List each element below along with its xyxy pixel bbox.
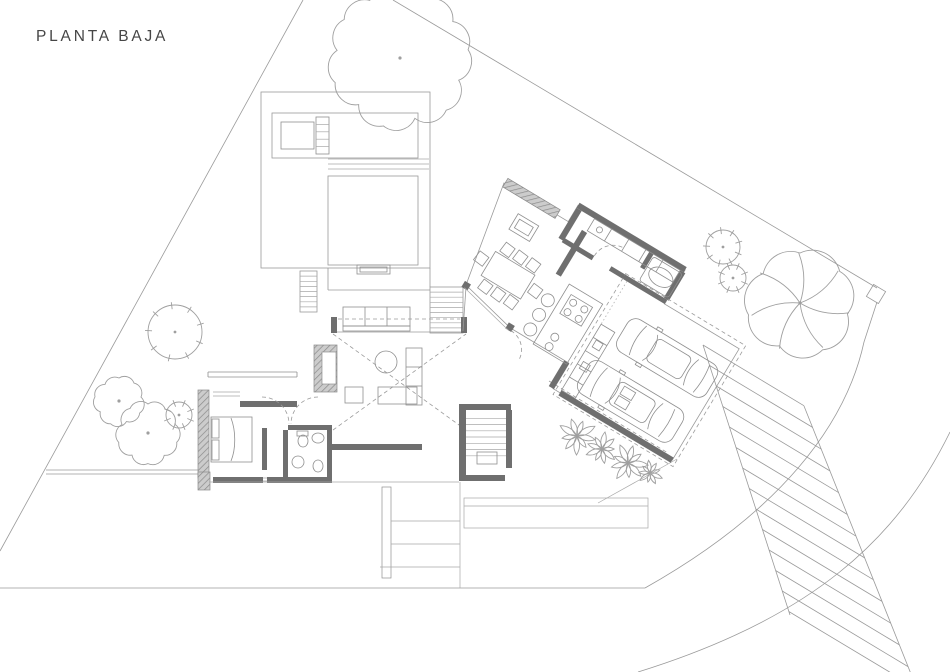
corner-post [505,322,515,332]
wc [313,460,323,472]
tree-cluster-c-trunk [178,414,181,417]
stool [539,291,557,309]
cooktop-dot [595,226,603,234]
driveway-stripes [703,345,917,672]
entry-closet [509,214,539,242]
burner [580,305,590,315]
sink-bowl [549,332,560,343]
floor-plan-sheet: PLANTA BAJA [0,0,950,672]
wardrobe [208,372,297,377]
palm-leaf [566,436,577,449]
palm-leaf [620,445,628,463]
blanket-fold [231,418,235,461]
bath-north-wall [288,425,332,430]
tree-lobed-east-lobe [799,253,804,303]
deck-stairs-west-treads [300,276,317,307]
bedroom-west-wall [198,390,209,478]
bath-east-wall [327,428,332,477]
tree-small-spiky-trunk [174,331,177,334]
storage-divider [585,351,599,359]
bed [211,417,252,462]
mirror [635,362,642,368]
pool-steps [328,159,429,169]
dining-chair [528,283,543,298]
bush-east-a-tick [721,227,722,234]
stair-treads [466,418,506,456]
mirror [619,370,626,376]
curb-outer [638,432,950,672]
driveway-stripe [762,530,882,602]
deck-stairs-east [430,287,463,333]
mirror [656,327,663,333]
stair-south-wall [459,475,505,481]
bush-east-b-trunk [732,277,735,280]
outdoor-kitchen-counter [281,122,314,149]
floor-plan-drawing [0,0,950,672]
sink-bowl [544,341,555,352]
tree-lobed-east-lobe [780,303,801,349]
driveway-stripe [769,550,891,623]
burner [568,298,578,308]
car-1 [611,312,723,403]
grill-slats [316,124,329,146]
page-title: PLANTA BAJA [36,28,168,46]
bedroom-north-wall [240,401,297,407]
stair-landing [477,452,497,464]
terrace [209,381,677,588]
tree-large-canopy-trunk [398,56,401,59]
dining-set [462,232,555,318]
tree-cluster-b-trunk [146,431,149,434]
stair-north-wall [466,404,511,410]
door-swing [500,331,530,361]
boundary-line-west [0,0,303,551]
angled-wing [424,164,765,466]
terrace-steps [380,521,460,567]
shower-drain [292,456,304,468]
outdoor-kitchen [272,113,418,158]
driveway-stripe [736,448,847,515]
tree-large-canopy [328,0,471,130]
tree-lobed-east-lobe [800,303,849,314]
curb-inner [645,302,877,588]
pillow [212,440,219,460]
bedroom-corner-pier [198,472,210,490]
pillow [212,419,219,438]
tree-lobed-east-lobe [800,271,838,303]
stair-west-wall [459,404,466,481]
mirror [598,405,605,411]
street-curbs [638,302,950,672]
bath-partition-wall [283,430,288,478]
bar-stools [521,291,556,338]
driveway-stripe [723,407,830,472]
garden-bed-edge [598,459,677,503]
planter [382,487,391,578]
stool [521,321,539,339]
garden-fence [46,470,198,474]
storage-divider [569,377,583,385]
stairwell [332,404,512,481]
dining-north-wall [503,178,560,218]
tree-cluster-a-trunk [117,399,120,402]
kitchen-wall-post [549,360,570,389]
stair-east-wall [506,410,512,468]
driveway-stripe [776,571,900,645]
stool [530,306,548,324]
driveway-stripe [789,612,917,672]
fireplace [314,345,337,392]
palm-plants [560,419,662,483]
bush-east-a-trunk [722,246,725,249]
tree-lobed-east-lobe [752,303,800,316]
driveway-stripe [703,345,804,406]
angled-wing-outline [426,167,760,461]
wall-post-west [331,317,337,333]
partition-wall [262,428,267,470]
deck-stairs-east-treads [430,292,463,328]
door-swing [594,237,624,267]
tree-lobed-east-lobe [760,273,800,303]
driveway-stripe [710,366,813,428]
tree-lobed-east-lobe [800,303,823,348]
boundary-line-northeast [393,0,877,288]
sink [312,433,324,443]
deck-outline [261,92,430,268]
palm-leaf [628,454,641,463]
pouf [345,387,363,403]
driveway-stripe [756,509,874,580]
deck-area [261,92,463,333]
driveway-stripe [782,591,908,667]
pool-bench [357,265,390,274]
entry-closet-inner [514,219,533,236]
toilet [298,435,308,447]
garage-storage [561,324,614,398]
coffee-table [378,387,417,404]
corridor-wall [558,208,581,241]
appliance [592,340,603,351]
northeast-wall [576,203,686,273]
roof-projection-dashed [549,381,668,453]
hall-south-wall [332,444,422,450]
driveway-stripe [749,489,865,558]
tree-small-spiky-tick [171,302,172,309]
bathroom-fixtures [292,431,324,472]
garage-southwest-wall [558,390,673,463]
living-room [314,287,467,430]
dining-chairs [462,232,555,318]
armchair [375,351,397,373]
outdoor-kitchen-grill [316,117,329,154]
kitchen-island [533,284,602,364]
driveway-stripe [716,386,821,449]
palm-leaf [560,426,577,436]
bath2-east-wall [664,270,686,301]
bedroom-wing [198,372,332,490]
bath2-south-wall [609,266,667,304]
pool [328,176,418,265]
driveway-stripe [743,468,857,536]
garden-bed [464,498,648,528]
kitchen-counter [587,219,680,283]
